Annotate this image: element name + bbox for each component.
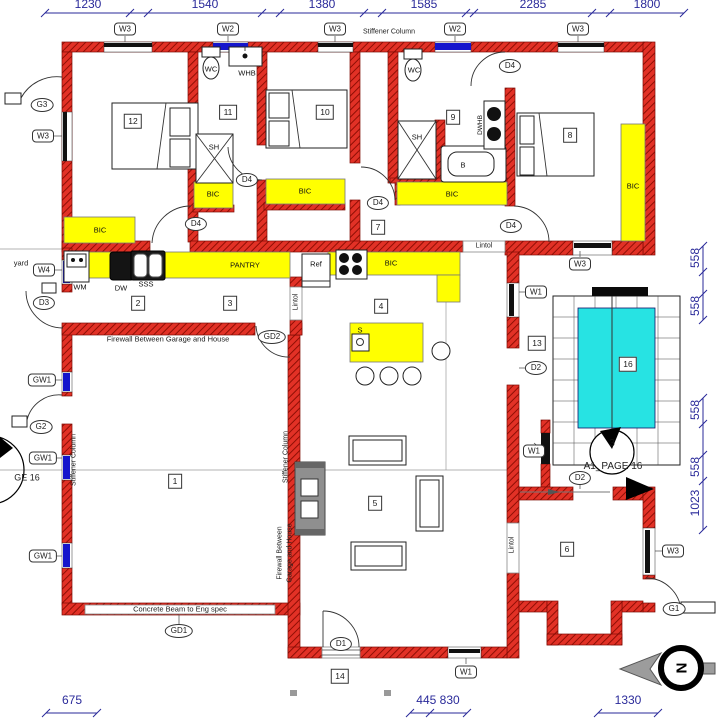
north-arrow xyxy=(620,648,715,688)
floor-plan-canvas: W3W2W3W2W3W3W4GW1GW1GW1W3W1W1W3W1 G3D3G2… xyxy=(0,0,720,720)
floor-plan-drawing xyxy=(0,0,720,720)
north-letter: N xyxy=(674,663,689,674)
lintol-bands xyxy=(85,241,519,658)
